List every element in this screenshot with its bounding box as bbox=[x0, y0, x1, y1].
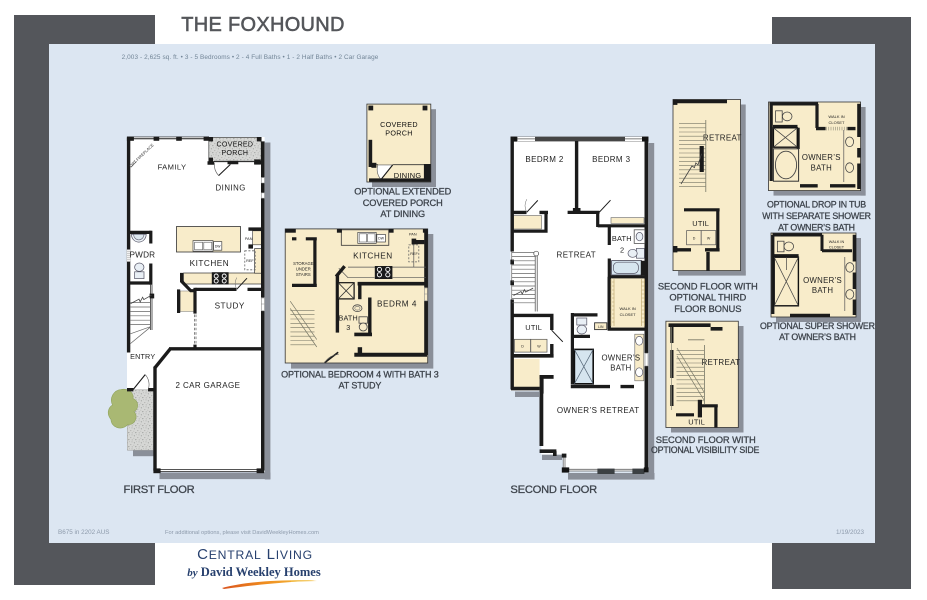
svg-text:BEDRM 4: BEDRM 4 bbox=[377, 299, 417, 308]
svg-text:FAMILY: FAMILY bbox=[158, 162, 187, 171]
svg-text:AT STUDY: AT STUDY bbox=[338, 381, 381, 391]
svg-text:BATH: BATH bbox=[338, 313, 357, 322]
svg-text:D: D bbox=[521, 344, 524, 348]
svg-text:REF: REF bbox=[246, 259, 254, 263]
svg-text:COVERED: COVERED bbox=[217, 142, 254, 149]
svg-text:OWNER’S RETREAT: OWNER’S RETREAT bbox=[557, 406, 640, 415]
svg-text:W: W bbox=[707, 237, 711, 241]
svg-text:OPTIONAL BEDROOM 4 WITH BATH 3: OPTIONAL BEDROOM 4 WITH BATH 3 bbox=[281, 370, 439, 380]
svg-text:STUDY: STUDY bbox=[215, 301, 245, 310]
svg-text:KITCHEN: KITCHEN bbox=[190, 259, 229, 268]
svg-text:3: 3 bbox=[346, 323, 350, 332]
svg-text:BATH: BATH bbox=[812, 286, 833, 295]
svg-text:SECOND FLOOR: SECOND FLOOR bbox=[510, 484, 597, 496]
svg-text:CLOSET: CLOSET bbox=[620, 312, 637, 317]
svg-text:W: W bbox=[537, 344, 541, 348]
svg-text:UTIL: UTIL bbox=[525, 323, 542, 332]
svg-text:UNDER: UNDER bbox=[296, 266, 311, 271]
svg-text:RETREAT: RETREAT bbox=[701, 358, 740, 367]
svg-text:DW: DW bbox=[215, 244, 221, 248]
svg-text:FLOOR BONUS: FLOOR BONUS bbox=[674, 303, 741, 314]
svg-text:D: D bbox=[693, 237, 696, 241]
svg-text:CLOSET: CLOSET bbox=[829, 245, 845, 249]
svg-text:UTIL: UTIL bbox=[688, 418, 705, 427]
svg-text:BEDRM 3: BEDRM 3 bbox=[592, 155, 631, 164]
svg-text:BATH: BATH bbox=[610, 363, 631, 372]
svg-text:PAN: PAN bbox=[409, 232, 417, 236]
svg-text:OWNER’S: OWNER’S bbox=[601, 354, 640, 363]
svg-text:AT DINING: AT DINING bbox=[380, 209, 425, 219]
svg-text:2: 2 bbox=[620, 246, 624, 255]
svg-text:COVERED PORCH: COVERED PORCH bbox=[363, 198, 443, 208]
svg-text:OWNER’S: OWNER’S bbox=[802, 153, 841, 162]
svg-text:PAN: PAN bbox=[245, 237, 253, 241]
svg-text:OPTIONAL THIRD: OPTIONAL THIRD bbox=[669, 292, 746, 303]
svg-text:SECOND FLOOR WITH: SECOND FLOOR WITH bbox=[656, 434, 756, 445]
svg-text:SECOND FLOOR WITH: SECOND FLOOR WITH bbox=[658, 280, 758, 291]
svg-text:OPTIONAL EXTENDED: OPTIONAL EXTENDED bbox=[354, 187, 451, 197]
svg-text:UTIL: UTIL bbox=[692, 219, 709, 228]
svg-text:KITCHEN: KITCHEN bbox=[353, 251, 392, 260]
svg-text:AT OWNER’S BATH: AT OWNER’S BATH bbox=[778, 222, 855, 232]
svg-text:RETREAT: RETREAT bbox=[703, 134, 742, 143]
svg-text:PWDR: PWDR bbox=[129, 250, 155, 259]
svg-text:CLOSET: CLOSET bbox=[828, 120, 845, 125]
svg-text:PORCH: PORCH bbox=[222, 150, 249, 157]
svg-text:OPTIONAL DROP IN TUB: OPTIONAL DROP IN TUB bbox=[767, 199, 866, 209]
svg-text:AT OWNER’S BATH: AT OWNER’S BATH bbox=[779, 332, 856, 342]
svg-text:BATH: BATH bbox=[811, 164, 832, 173]
svg-text:STORAGE: STORAGE bbox=[293, 261, 314, 266]
svg-text:DINING: DINING bbox=[394, 171, 422, 180]
svg-text:DINING: DINING bbox=[216, 183, 246, 192]
svg-text:LIN: LIN bbox=[598, 325, 604, 329]
svg-text:BEDRM 2: BEDRM 2 bbox=[525, 155, 564, 164]
svg-text:WALK IN: WALK IN bbox=[828, 114, 844, 119]
svg-text:WALK IN: WALK IN bbox=[829, 240, 845, 244]
svg-text:OPTIONAL SUPER SHOWER: OPTIONAL SUPER SHOWER bbox=[760, 321, 875, 331]
svg-text:REF: REF bbox=[410, 252, 418, 256]
svg-text:RETREAT: RETREAT bbox=[557, 251, 597, 260]
svg-text:2 CAR GARAGE: 2 CAR GARAGE bbox=[175, 381, 240, 390]
svg-text:WALK IN: WALK IN bbox=[619, 306, 635, 311]
svg-text:WITH SEPARATE SHOWER: WITH SEPARATE SHOWER bbox=[762, 211, 871, 221]
svg-text:DW: DW bbox=[378, 237, 384, 241]
svg-text:OWNER’S: OWNER’S bbox=[803, 276, 842, 285]
svg-text:FIRST FLOOR: FIRST FLOOR bbox=[124, 484, 195, 496]
svg-text:ENTRY: ENTRY bbox=[130, 352, 155, 361]
svg-text:STAIRS: STAIRS bbox=[296, 272, 311, 277]
svg-text:OPTIONAL VISIBILITY SIDE: OPTIONAL VISIBILITY SIDE bbox=[651, 445, 759, 455]
svg-text:BATH: BATH bbox=[612, 234, 632, 243]
svg-text:PORCH: PORCH bbox=[385, 129, 412, 138]
